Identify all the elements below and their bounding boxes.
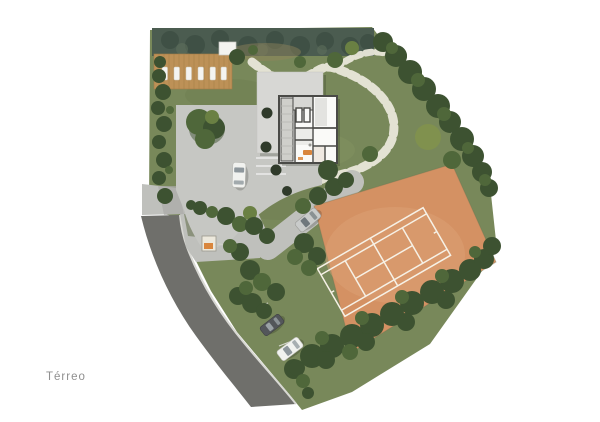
tree: [327, 52, 343, 68]
tree: [239, 281, 253, 295]
tree: [152, 171, 166, 185]
gatehouse-roof-accent: [204, 243, 213, 249]
tree: [309, 187, 327, 205]
tree: [483, 237, 501, 255]
room-fill: [314, 147, 325, 162]
tree: [318, 160, 338, 180]
floor-plan-label: Térreo: [46, 371, 86, 383]
rear-window: [234, 180, 244, 184]
lounge-chair: [174, 67, 180, 80]
tree: [345, 41, 359, 55]
planter-tree: [261, 142, 272, 153]
tree: [357, 333, 375, 351]
tree: [287, 249, 303, 265]
tree: [479, 174, 491, 186]
tree: [395, 290, 409, 304]
tree: [317, 351, 335, 369]
windshield: [234, 167, 244, 172]
tree: [229, 49, 245, 65]
tree: [151, 101, 165, 115]
tree: [437, 107, 451, 121]
bush: [206, 206, 218, 218]
tree: [301, 260, 317, 276]
tree: [415, 124, 441, 150]
lounge-chair: [210, 67, 216, 80]
stair-core: [304, 108, 310, 122]
tree: [302, 387, 314, 399]
bush: [186, 200, 196, 210]
tree: [157, 188, 173, 204]
tree: [469, 246, 481, 258]
tree: [152, 135, 166, 149]
site-plan-page: Térreo: [0, 0, 600, 422]
tree: [295, 198, 311, 214]
tree: [397, 313, 415, 331]
tree: [195, 129, 215, 149]
tree: [152, 69, 166, 83]
tree: [248, 45, 258, 55]
tree: [362, 146, 378, 162]
stair-core: [296, 108, 302, 122]
tree: [355, 311, 369, 325]
lounge-chair: [198, 67, 204, 80]
tree: [342, 344, 358, 360]
tree: [338, 172, 354, 188]
sofa-accent: [298, 157, 303, 160]
building-floor-plan: [279, 96, 340, 166]
sofa-accent: [303, 150, 312, 155]
tree: [256, 303, 272, 319]
planter-tree: [282, 186, 292, 196]
lounge-chair: [186, 67, 192, 80]
tree: [435, 269, 449, 283]
planter-tree: [262, 108, 273, 119]
tree: [156, 152, 172, 168]
tree: [267, 283, 285, 301]
tree: [437, 291, 455, 309]
tree: [386, 42, 398, 54]
hedge-texture: [176, 43, 188, 55]
table: [309, 144, 312, 147]
tree: [156, 116, 172, 132]
tree: [223, 239, 237, 253]
site-plan-rendering: [0, 0, 600, 422]
tree: [443, 151, 461, 169]
tree: [155, 84, 171, 100]
tree: [296, 374, 310, 388]
tree: [294, 56, 306, 68]
hedge-texture: [185, 35, 205, 55]
tree: [289, 360, 305, 376]
planter-tree: [271, 165, 282, 176]
tree: [411, 73, 425, 87]
tree: [462, 142, 474, 154]
tree: [166, 106, 174, 114]
tree: [259, 228, 275, 244]
tree: [315, 331, 329, 345]
hedge-texture: [317, 45, 327, 55]
lounge-chair: [221, 67, 227, 80]
room-fill: [315, 98, 327, 126]
tree: [165, 166, 173, 174]
room-fill: [296, 129, 312, 145]
tree: [154, 56, 166, 68]
hedge-texture: [161, 31, 179, 49]
tree: [205, 110, 219, 124]
terrace-louvers: [281, 98, 293, 161]
